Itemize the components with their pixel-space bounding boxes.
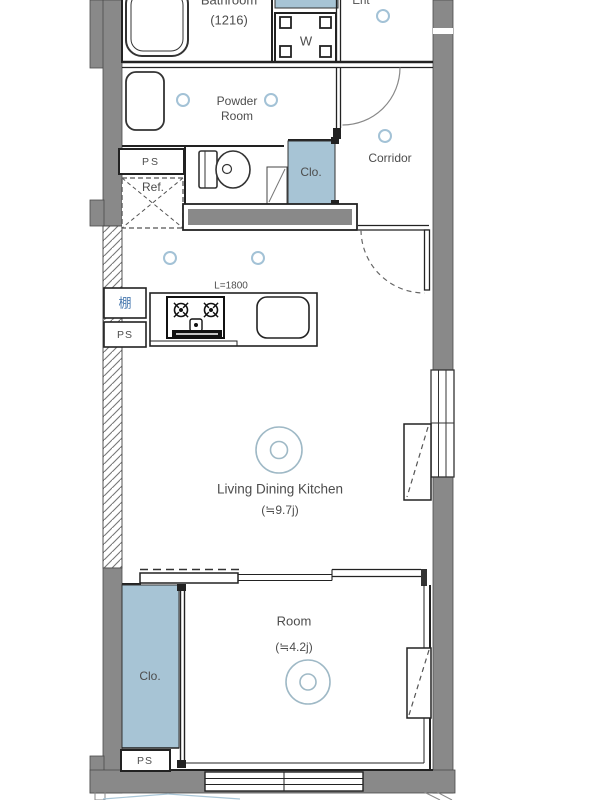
- corridor-closet: Clo.: [288, 137, 339, 207]
- sink-icon: [257, 297, 309, 338]
- room-closet-label: Clo.: [139, 669, 160, 683]
- entrance: Ent: [337, 0, 390, 62]
- powder-room: Powder Room: [126, 72, 277, 130]
- wall-right-lower: [433, 477, 453, 793]
- downlight-icon: [177, 94, 189, 106]
- corridor-label: Corridor: [368, 151, 411, 165]
- floorplan-drawing: Bathroom (1216) W Ent Corridor Powd: [0, 0, 600, 800]
- room-pipe-space-label: PS: [137, 755, 153, 767]
- ldk-size-label: (≒9.7j): [261, 503, 298, 517]
- wall-left-top-thick: [90, 0, 104, 68]
- toilet-flush-icon: [223, 165, 232, 174]
- kitchen: L=1800 棚 PS: [104, 281, 317, 348]
- corridor: Corridor: [333, 68, 412, 166]
- bathroom-label: Bathroom: [201, 0, 257, 8]
- downlight-icon: [164, 252, 176, 264]
- wall-left-lower: [103, 568, 122, 793]
- ceiling-light-inner: [271, 442, 288, 459]
- wall-left-hatched: [103, 226, 122, 568]
- shelf-label: 棚: [118, 296, 131, 311]
- kitchen-pipe-space-label: PS: [117, 329, 133, 341]
- powder-room-label-line1: Powder: [217, 94, 258, 108]
- downlight-icon: [377, 10, 389, 22]
- washer-pan-corner: [280, 17, 291, 28]
- washer-top-blue-panel: [275, 0, 338, 8]
- sliding-track-end-cap: [421, 569, 427, 586]
- interior-wall-bar: [183, 204, 357, 230]
- closet-end-cap: [331, 137, 339, 144]
- washer-label: W: [300, 34, 313, 49]
- refrigerator-label: Ref.: [142, 180, 164, 194]
- downlight-icon: [265, 94, 277, 106]
- bathroom-size-label: (1216): [210, 13, 248, 28]
- pipe-space-label: PS: [142, 156, 160, 168]
- ldk-door: [358, 226, 430, 294]
- balcony-door-arc-hint: [168, 794, 240, 799]
- kitchen-counter-length-label: L=1800: [214, 281, 248, 292]
- downlight-icon: [379, 130, 391, 142]
- powder-room-label-line2: Room: [221, 109, 253, 123]
- wall-left-pillar: [90, 200, 104, 226]
- wall-left-upper: [103, 0, 122, 226]
- room-label: Room: [277, 614, 312, 629]
- wall-right-upper: [433, 0, 453, 371]
- washer-pan-corner: [280, 46, 291, 57]
- closet-end-cap: [177, 584, 186, 591]
- room-casement-window: [407, 648, 431, 718]
- toilet-bowl-icon: [216, 151, 250, 188]
- bedroom: Clo. PS Room (≒4.2j): [121, 584, 433, 771]
- ceiling-light-inner: [300, 674, 316, 690]
- entry-door-swing-arc: [343, 68, 401, 126]
- room-size-label: (≒4.2j): [275, 640, 312, 654]
- room-closet-area: [122, 585, 179, 748]
- door-swing-arc-dashed: [361, 230, 425, 293]
- sliding-door-panel: [140, 573, 238, 583]
- washer-space: W: [275, 0, 338, 62]
- wall-right-joint-gap: [433, 28, 453, 34]
- closet-end-cap: [177, 760, 186, 768]
- vanity-sink-icon: [126, 72, 164, 130]
- corridor-closet-label: Clo.: [300, 165, 321, 179]
- upper-horizontal-wall: [122, 62, 433, 68]
- floorplan-canvas: Bathroom (1216) W Ent Corridor Powd: [0, 0, 600, 800]
- washer-pan-corner: [320, 17, 331, 28]
- ldk-label: Living Dining Kitchen: [217, 482, 343, 497]
- balcony-door-arc-hint: [103, 794, 168, 799]
- downlight-icon: [252, 252, 264, 264]
- washer-pan-corner: [320, 46, 331, 57]
- entrance-label: Ent: [352, 0, 370, 7]
- bottom-window: [205, 772, 363, 791]
- sliding-door-divider: [122, 569, 427, 586]
- door-leaf: [425, 230, 430, 290]
- interior-wall-fill: [188, 209, 352, 225]
- bathroom: Bathroom (1216): [122, 0, 272, 62]
- toilet-tank-icon: [199, 151, 217, 188]
